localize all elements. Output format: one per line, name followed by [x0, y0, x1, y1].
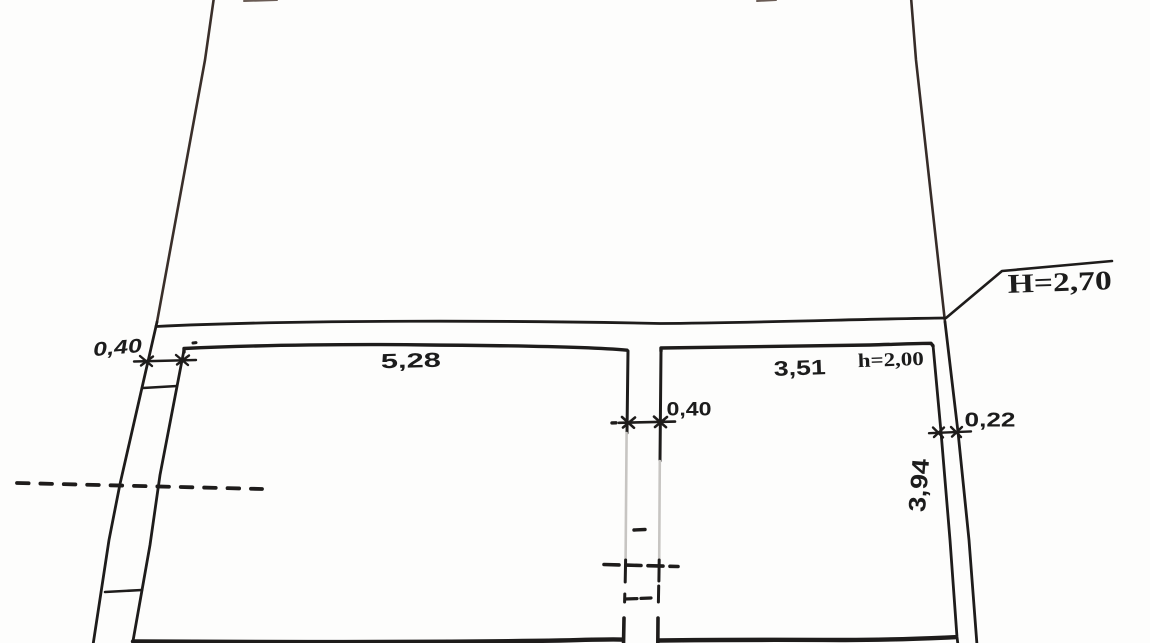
- svg-text:H=2,70: H=2,70: [1007, 265, 1112, 299]
- svg-text:0,22: 0,22: [965, 410, 1016, 432]
- svg-text:0,40: 0,40: [667, 399, 712, 421]
- svg-text:3,94: 3,94: [904, 457, 935, 513]
- svg-text:0,40: 0,40: [92, 335, 143, 361]
- svg-text:5,28: 5,28: [381, 349, 442, 374]
- svg-text:h=2,00: h=2,00: [857, 349, 924, 372]
- svg-text:3,51: 3,51: [773, 356, 826, 381]
